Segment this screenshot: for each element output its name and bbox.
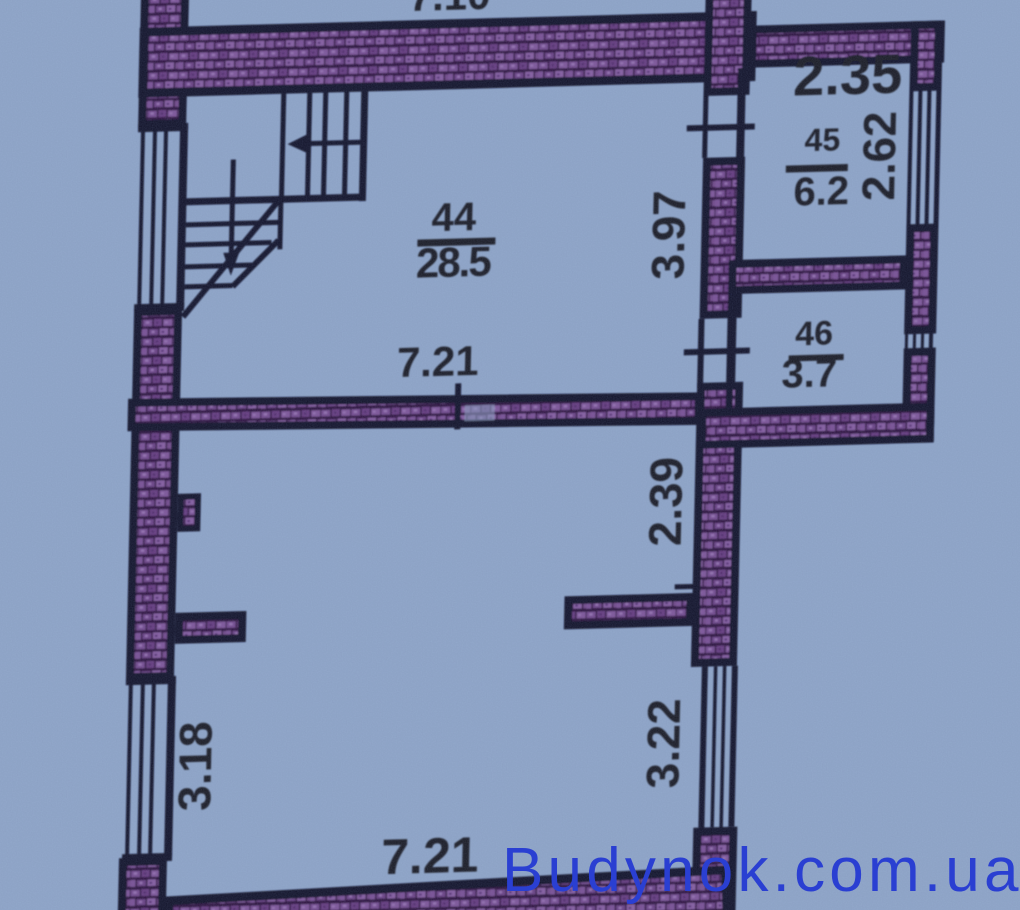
svg-text:Budynok.com.ua: Budynok.com.ua — [502, 836, 1020, 905]
